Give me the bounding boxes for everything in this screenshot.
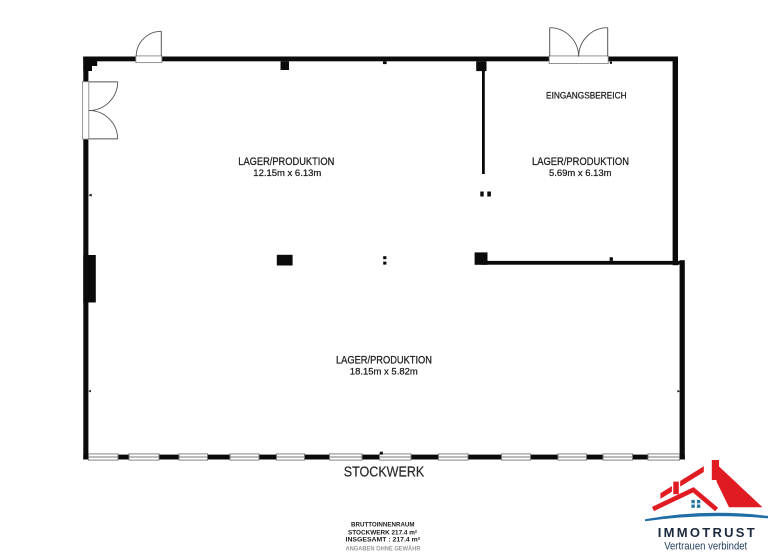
svg-text:18.15m x 5.82m: 18.15m x 5.82m: [350, 367, 418, 378]
svg-text:EINGANGSBEREICH: EINGANGSBEREICH: [546, 90, 627, 101]
svg-text:ANGABEN OHNE GEWÄHR: ANGABEN OHNE GEWÄHR: [346, 544, 421, 552]
svg-text:LAGER/PRODUKTION: LAGER/PRODUKTION: [532, 156, 629, 168]
svg-text:Vertrauen verbindet: Vertrauen verbindet: [664, 540, 747, 552]
svg-text:5.69m x 6.13m: 5.69m x 6.13m: [549, 168, 612, 179]
svg-text:IMMOTRUST: IMMOTRUST: [658, 525, 755, 540]
svg-text:LAGER/PRODUKTION: LAGER/PRODUKTION: [336, 355, 432, 367]
svg-text:STOCKWERK: STOCKWERK: [344, 465, 425, 481]
svg-text:12.15m x 6.13m: 12.15m x 6.13m: [253, 168, 321, 179]
svg-text:LAGER/PRODUKTION: LAGER/PRODUKTION: [238, 156, 334, 168]
svg-text:BRUTTOINNENRAUM: BRUTTOINNENRAUM: [351, 521, 415, 528]
svg-text:STOCKWERK 217.4 m²: STOCKWERK 217.4 m²: [348, 529, 418, 536]
svg-text:INSGESAMT : 217.4 m²: INSGESAMT : 217.4 m²: [346, 536, 421, 543]
